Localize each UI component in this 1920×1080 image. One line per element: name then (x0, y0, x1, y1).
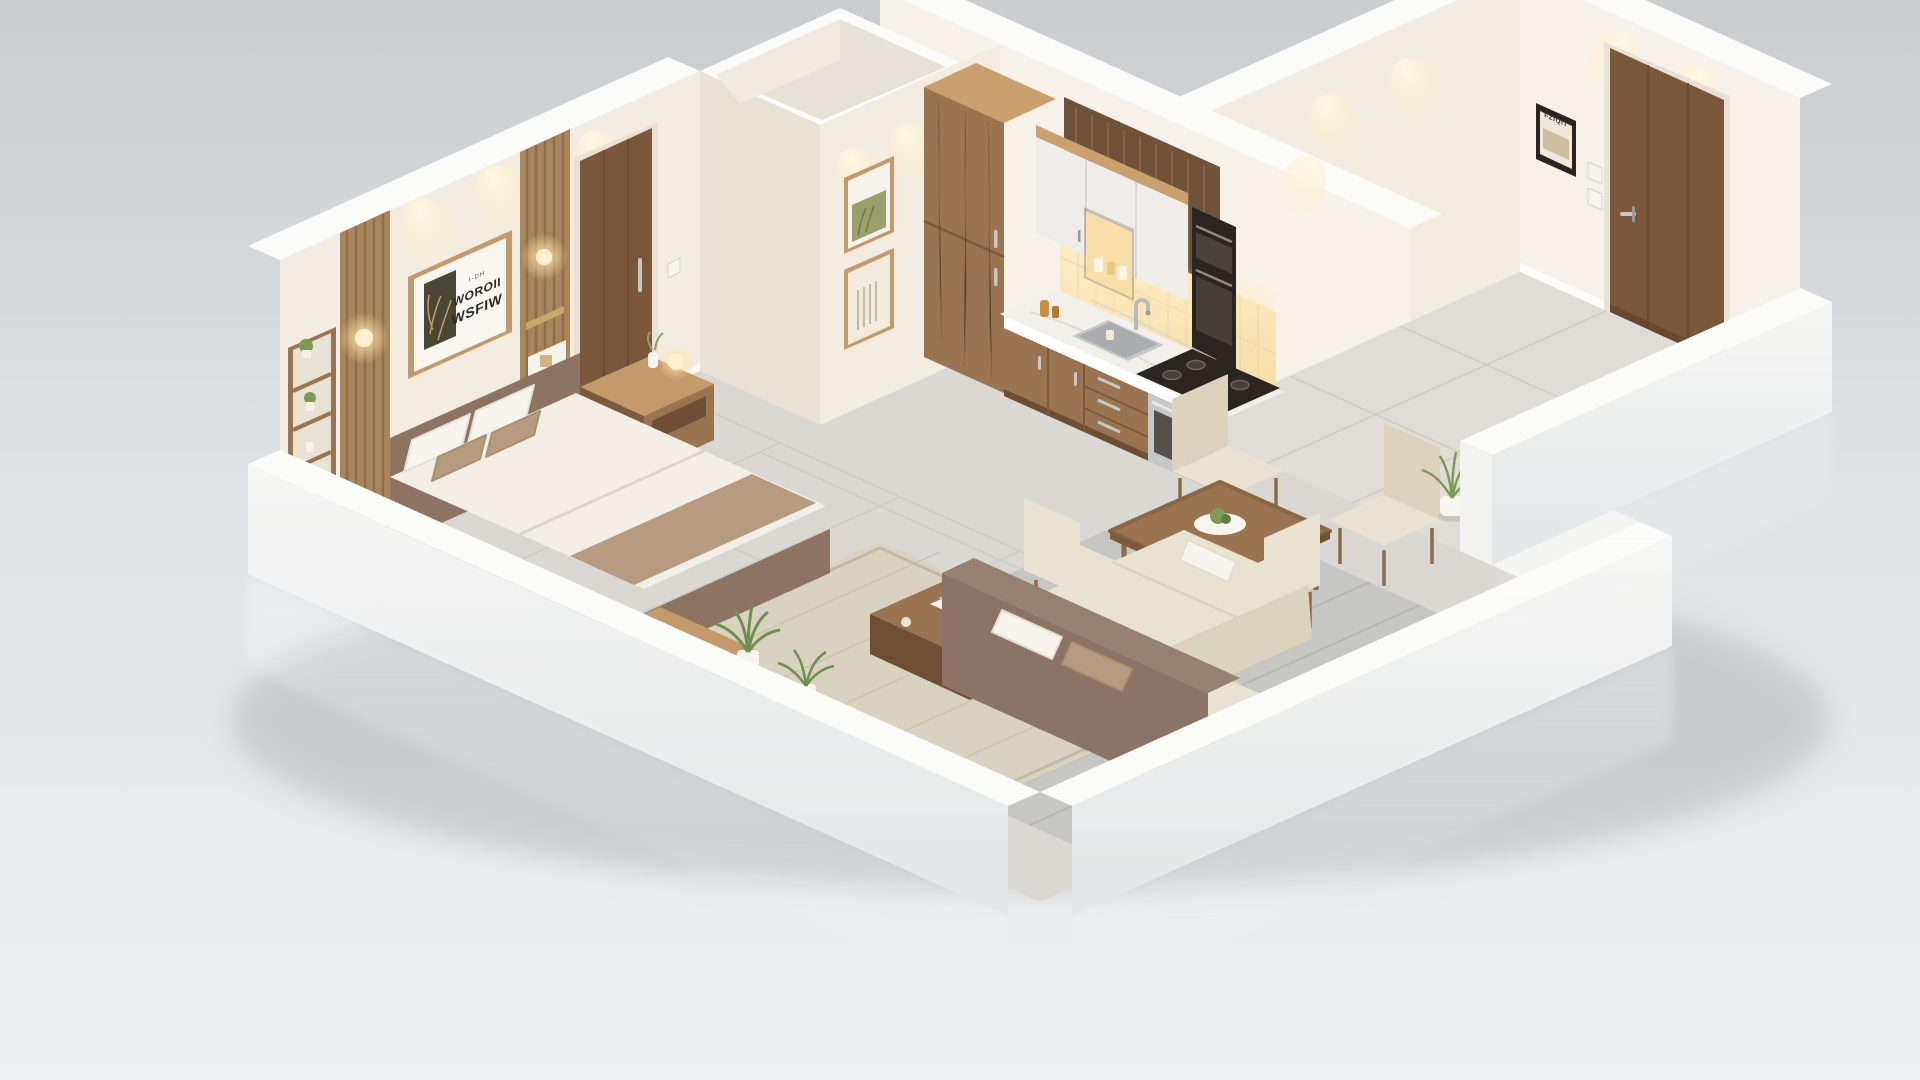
cabinet-handle (994, 268, 998, 286)
door-handle (638, 258, 642, 292)
cabinet-handle (994, 230, 998, 248)
shelf-candle (306, 442, 314, 452)
candle (1106, 330, 1114, 340)
bottle (1040, 300, 1049, 317)
niche-jar (1107, 262, 1115, 275)
apartment-render: FZIQIT (0, 0, 1920, 1080)
bathroom-volume (700, 8, 960, 425)
decor (901, 617, 911, 627)
vase (648, 352, 658, 368)
bottle (1052, 306, 1059, 318)
cabinet-handle (1038, 356, 1041, 370)
sconce-light (536, 249, 552, 265)
isometric-scene: FZIQIT (0, 0, 1920, 1080)
sconce-light (355, 329, 373, 347)
cabinet-handle (1074, 372, 1077, 386)
niche-jar (1094, 258, 1103, 272)
niche-jar (1118, 266, 1127, 280)
table-lamp (668, 354, 684, 370)
